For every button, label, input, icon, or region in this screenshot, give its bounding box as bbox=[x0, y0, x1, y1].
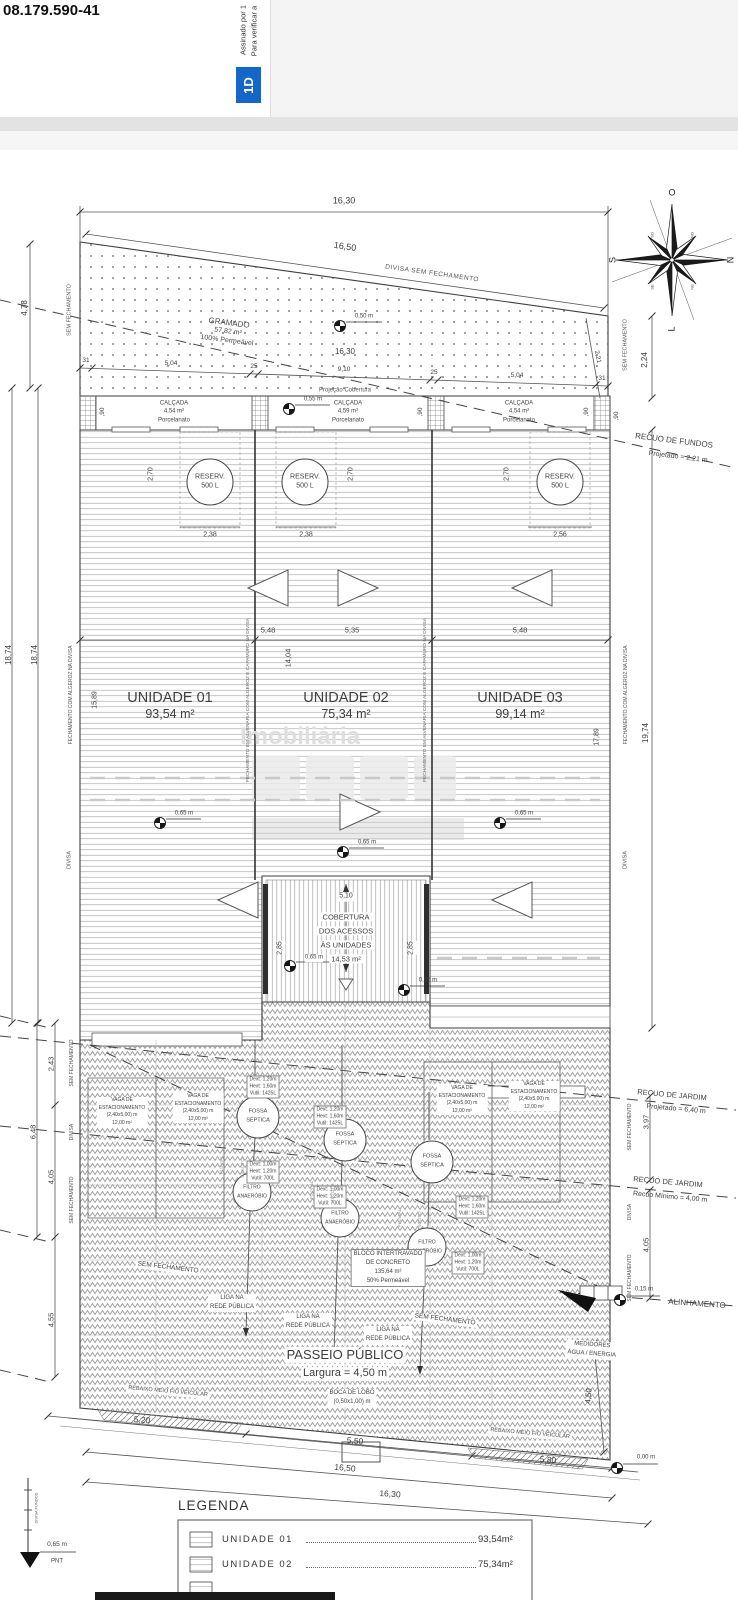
filtro-1-l2: ANAERÓBIO bbox=[237, 1192, 267, 1201]
liga-2-l1: LIGA NA bbox=[286, 1313, 330, 1322]
vaga-2-l4: 12,00 m² bbox=[175, 1116, 222, 1124]
filtro-2-l2: ANAERÓBIO bbox=[325, 1218, 355, 1227]
bottom-cut-bar bbox=[95, 1592, 335, 1600]
pipe-pluvial-2: PLUVIAL bbox=[309, 1181, 315, 1200]
calcada-1-title: CALÇADA bbox=[158, 399, 190, 407]
legend-title: LEGENDA bbox=[178, 1498, 250, 1513]
seg-dim-7: 31 bbox=[598, 375, 605, 383]
fossa-3-l1: FOSSA bbox=[420, 1153, 444, 1162]
spec-t3-c: Vutil: 700L bbox=[455, 1267, 482, 1274]
depth-dim: 14,04 bbox=[283, 649, 292, 668]
calcada-3-title: CALÇADA bbox=[503, 399, 535, 407]
divisa-right-mid: DIVISA bbox=[623, 851, 630, 869]
boca-de-lobo-label: BOCA DE LOBO(0,50x1,00) m bbox=[327, 1389, 376, 1407]
spec-f2-b: Hext: 1,60m bbox=[317, 1114, 344, 1121]
compass-sw-label: SO bbox=[650, 232, 655, 238]
compass-west-label: O bbox=[668, 187, 675, 198]
liga-rede-3: LIGA NAREDE PÚBLICA bbox=[364, 1326, 412, 1344]
cover-width-dim: 5,10 bbox=[337, 893, 355, 902]
party-wall-1-label: FECHAMENTO EM ALVENARIA COM ALGEROZ E CA… bbox=[246, 618, 252, 782]
spec-t1-a: Dext: 1,00m bbox=[250, 1162, 277, 1169]
seg-dim-4: 9,10 bbox=[338, 366, 351, 374]
spec-f3-a: Dext: 1,20m bbox=[459, 1197, 486, 1204]
fossa-1-l1: FOSSA bbox=[246, 1108, 270, 1117]
liga-rede-1: LIGA NAREDE PÚBLICA bbox=[208, 1294, 256, 1312]
compass-ne-label: NE bbox=[690, 284, 695, 290]
fossa-2-l1: FOSSA bbox=[333, 1131, 357, 1140]
calcada-3-floor: Porcelanato bbox=[503, 416, 535, 424]
legend-row-1-value: 93,54m² bbox=[478, 1534, 513, 1545]
section-dim-2: 5,35 bbox=[345, 625, 360, 634]
spec-t1-b: Hext: 1,20m bbox=[250, 1169, 277, 1176]
vaga-3-l2: ESTACIONAMENTO bbox=[439, 1093, 486, 1101]
dim-1650-bottom: 16,50 bbox=[334, 1462, 356, 1474]
filtro-3-l1: FILTRO bbox=[412, 1239, 442, 1248]
pipe-esgoto-3: ESGOTO bbox=[417, 1211, 423, 1230]
vaga-1-label: VAGA DEESTACIONAMENTO (2,40x5,00) m12,00… bbox=[97, 1097, 148, 1127]
dim-520: 5,20 bbox=[133, 1414, 150, 1426]
compass-rose bbox=[612, 200, 732, 320]
bloco-l4: 50% Permeável bbox=[354, 1277, 423, 1286]
reserv-2-cap: 500 L bbox=[290, 482, 320, 491]
spec-f1-b: Hext: 1,60m bbox=[250, 1084, 277, 1091]
filtro-2-l1: FILTRO bbox=[325, 1210, 355, 1219]
calcada-2-floor: Porcelanato bbox=[332, 416, 364, 424]
passeio-value: Largura = 4,50 m bbox=[301, 1367, 389, 1381]
reserv-3-label: RESERV. 500 L bbox=[545, 473, 575, 491]
legend-row-2-value: 75,34m² bbox=[478, 1559, 513, 1570]
reserv-1-label: RESERV. 500 L bbox=[195, 473, 225, 491]
cover-side-dim-right: 2,85 bbox=[408, 941, 417, 955]
spec-f2-c: Vutil: 1425L bbox=[317, 1121, 344, 1128]
unit-1-name: UNIDADE 01 bbox=[127, 689, 212, 707]
projecao-cobertura-label: Projeção Cobertura bbox=[319, 387, 371, 395]
spec-fossa-1: Dext: 1,20mHext: 1,60mVutil: 1425L bbox=[247, 1076, 280, 1099]
fossa-3-label: FOSSASÉPTICA bbox=[420, 1153, 444, 1172]
reserv-height-2: 2,70 bbox=[348, 467, 357, 481]
cover-line3: ÀS UNIDADES bbox=[319, 940, 374, 949]
seg-dim-2: 5,04 bbox=[165, 360, 178, 368]
spec-filtro-3: Dext: 1,00mHext: 1,20mVutil: 700L bbox=[452, 1252, 485, 1275]
vaga-2-l1: VAGA DE bbox=[175, 1093, 222, 1101]
calcada-1-floor: Porcelanato bbox=[158, 416, 190, 424]
sem-fechamento-right-b: SEM FECHAMENTO bbox=[627, 1254, 633, 1301]
calcada-2-label: CALÇADA 4,59 m² Porcelanato bbox=[332, 399, 364, 424]
benchmark-level: 0,65 m bbox=[47, 1541, 67, 1549]
spec-f3-c: Vutil: 1425L bbox=[459, 1211, 486, 1218]
dim-left-total-b: 18,74 bbox=[30, 645, 40, 665]
right-chain-397: 3,97 bbox=[641, 1115, 650, 1130]
unit-3-area: 99,14 m² bbox=[477, 707, 562, 723]
unit-1-area: 93,54 m² bbox=[127, 707, 212, 723]
fechamento-algeroz-left: FECHAMENTO COM ALGEROZ NA DIVISA bbox=[68, 646, 74, 745]
vaga-4-l3: (2,40x5,00) m bbox=[511, 1096, 558, 1104]
passeio-title: PASSEIO PÚBLICO bbox=[285, 1347, 406, 1363]
pipe-esgoto-1: ESGOTO bbox=[240, 1158, 246, 1177]
reserv-3-title: RESERV. bbox=[545, 473, 575, 482]
unit-3-label: UNIDADE 03 99,14 m² bbox=[477, 689, 562, 723]
cover-line2: DOS ACESSOS bbox=[317, 926, 375, 935]
level-mid-2: 0,65 m bbox=[515, 810, 533, 818]
left-chain-455: 4,55 bbox=[46, 1313, 55, 1328]
compass-se-label: SE bbox=[650, 284, 655, 289]
vaga-1-l1: VAGA DE bbox=[99, 1097, 146, 1105]
sem-fechamento-right-top: SEM FECHAMENTO bbox=[623, 319, 630, 371]
spec-fossa-3: Dext: 1,20mHext: 1,60mVutil: 1425L bbox=[456, 1196, 489, 1219]
divisa-fundos-label: DIVISA FUNDOS bbox=[34, 1493, 39, 1524]
vaga-1-l2: ESTACIONAMENTO bbox=[99, 1105, 146, 1113]
left-chain-648: 6,48 bbox=[28, 1125, 37, 1140]
fechamento-algeroz-right: FECHAMENTO COM ALGEROZ NA DIVISA bbox=[623, 646, 629, 745]
bloco-l2: DE CONCRETO bbox=[354, 1259, 423, 1268]
reserv-1-title: RESERV. bbox=[195, 473, 225, 482]
liga-3-l2: REDE PÚBLICA bbox=[366, 1335, 410, 1344]
vaga-4-l2: ESTACIONAMENTO bbox=[511, 1089, 558, 1097]
fossa-1-l2: SÉPTICA bbox=[246, 1117, 270, 1126]
bloco-intertravado-label: BLOCO INTERTRAVADODE CONCRETO 135,64 m²5… bbox=[351, 1249, 426, 1287]
calcada-1-label: CALÇADA 4,54 m² Porcelanato bbox=[158, 399, 190, 424]
fossa-3-l2: SÉPTICA bbox=[420, 1162, 444, 1171]
unit-2-area: 75,34 m² bbox=[303, 707, 388, 723]
spec-t3-b: Hext: 1,20m bbox=[455, 1260, 482, 1267]
liga-3-l1: LIGA NA bbox=[366, 1326, 410, 1335]
reserv-width-3: 2,56 bbox=[553, 532, 567, 541]
legend-row-1-leader bbox=[306, 1535, 476, 1543]
left-chain-243: 2,43 bbox=[46, 1057, 55, 1072]
calcada-1-area: 4,54 m² bbox=[158, 408, 190, 416]
dim-left-top: 4,78 bbox=[20, 300, 30, 316]
filtro-2-label: FILTROANAERÓBIO bbox=[325, 1210, 355, 1227]
benchmark-pnt: PNT bbox=[51, 1558, 63, 1566]
dim-lot-front-top: 16,30 bbox=[333, 195, 356, 206]
dim-grass-inner: 16,30 bbox=[335, 347, 355, 357]
sem-fechamento-right-a: SEM FECHAMENTO bbox=[627, 1103, 633, 1150]
liga-1-l1: LIGA NA bbox=[210, 1294, 254, 1303]
calcada-height-1: ,90 bbox=[99, 407, 107, 416]
vaga-1-l4: 12,00 m² bbox=[99, 1120, 146, 1128]
medidores-label: MEDIDORESÁGUA / ENERGIA bbox=[565, 1339, 619, 1361]
reserv-3-cap: 500 L bbox=[545, 482, 575, 491]
vaga-3-l1: VAGA DE bbox=[439, 1085, 486, 1093]
level-cover: 0,65 m bbox=[305, 954, 323, 962]
dim-1630-bottom: 16,30 bbox=[379, 1488, 401, 1500]
bloco-l3: 135,64 m² bbox=[354, 1268, 423, 1277]
vaga-4-l1: VAGA DE bbox=[511, 1081, 558, 1089]
calcada-2-area: 4,59 m² bbox=[332, 408, 364, 416]
unit-1-label: UNIDADE 01 93,54 m² bbox=[127, 689, 212, 723]
pipe-esgoto-2: ESGOTO bbox=[330, 1183, 336, 1202]
unit-2-label: UNIDADE 02 75,34 m² bbox=[303, 689, 388, 723]
fossa-2-l2: SÉPTICA bbox=[333, 1140, 357, 1149]
liga-2-l2: REDE PÚBLICA bbox=[286, 1322, 330, 1331]
spec-f2-a: Dext: 1,20m bbox=[317, 1107, 344, 1114]
fossa-1-label: FOSSASÉPTICA bbox=[246, 1108, 270, 1127]
pipe-pluvial-3: PLUVIAL bbox=[397, 1209, 403, 1228]
sem-fechamento-left-b: SEM FECHAMENTO bbox=[69, 1176, 75, 1223]
sem-fechamento-left-a: SEM FECHAMENTO bbox=[69, 1039, 75, 1086]
liga-1-l2: REDE PÚBLICA bbox=[210, 1303, 254, 1312]
dim-right-inner: 17,89 bbox=[594, 728, 603, 746]
cover-side-dim-left: 2,85 bbox=[277, 941, 286, 955]
calcada-height-2: ,90 bbox=[417, 407, 425, 416]
reserv-width-2: 2,38 bbox=[299, 532, 313, 541]
filtro-1-label: FILTROANAERÓBIO bbox=[237, 1184, 267, 1201]
reserv-height-1: 2,70 bbox=[148, 467, 157, 481]
spec-t3-a: Dext: 1,00m bbox=[455, 1253, 482, 1260]
left-gate bbox=[92, 1033, 242, 1046]
level-right-band: 0,55 m bbox=[419, 977, 437, 985]
legend-row-2-leader bbox=[306, 1560, 476, 1568]
reserv-2-label: RESERV. 500 L bbox=[290, 473, 320, 491]
divisa-left-mid: DIVISA bbox=[67, 851, 74, 869]
calcada-2-title: CALÇADA bbox=[332, 399, 364, 407]
divisa-right-low: DIVISA bbox=[627, 1204, 633, 1220]
seg-dim-5: 25 bbox=[430, 369, 437, 377]
level-grass: 0,50 m bbox=[355, 313, 373, 321]
bloco-l1: BLOCO INTERTRAVADO bbox=[354, 1250, 423, 1259]
divisa-left-low: DIVISA bbox=[69, 1124, 75, 1140]
spec-filtro-1: Dext: 1,00mHext: 1,20mVutil: 700L bbox=[247, 1161, 280, 1184]
pipe-pluvial-1: PLUVIAL bbox=[219, 1156, 225, 1175]
vaga-3-l4: 12,00 m² bbox=[439, 1108, 486, 1116]
dim-right-top: 2,24 bbox=[640, 352, 650, 368]
benchmark-marker bbox=[20, 1478, 76, 1568]
cover-area: 14,53 m² bbox=[329, 954, 363, 963]
level-calcada: 0,55 m bbox=[304, 396, 322, 404]
seg-dim-6: 5,04 bbox=[511, 372, 524, 380]
dim-450: 4,50 bbox=[583, 1388, 594, 1404]
filtro-1-l1: FILTRO bbox=[237, 1184, 267, 1193]
dim-left-inner: 15,89 bbox=[92, 691, 101, 709]
level-mid-1: 0,65 m bbox=[175, 810, 193, 818]
party-wall-2-label: FECHAMENTO EM ALVENARIA COM ALGEROZ E CA… bbox=[423, 618, 429, 782]
calcada-3-area: 4,54 m² bbox=[503, 408, 535, 416]
calcada-height-3: ,90 bbox=[583, 407, 591, 416]
spec-t1-c: Vutil: 700L bbox=[250, 1176, 277, 1183]
reserv-1-cap: 500 L bbox=[195, 482, 225, 491]
spec-f3-b: Hext: 1,60m bbox=[459, 1204, 486, 1211]
vaga-3-l3: (2,40x5,00) m bbox=[439, 1100, 486, 1108]
liga-rede-2: LIGA NAREDE PÚBLICA bbox=[284, 1313, 332, 1331]
spec-f1-a: Dext: 1,20m bbox=[250, 1077, 277, 1084]
spec-f1-c: Vutil: 1425L bbox=[250, 1091, 277, 1098]
watermark-text: Imobiliária bbox=[240, 722, 360, 752]
vaga-4-label: VAGA DEESTACIONAMENTO (2,40x5,00) m12,00… bbox=[509, 1081, 560, 1111]
pdf-viewer-canvas[interactable]: 08.179.590-41 Assinado por 1 Para verifi… bbox=[0, 0, 738, 1600]
compass-north-label: N bbox=[725, 257, 736, 264]
level-mid-3: 0,65 m bbox=[358, 839, 376, 847]
legend-row-2-label: UNIDADE 02 bbox=[222, 1559, 293, 1570]
calcada-height-4: ,90 bbox=[613, 411, 621, 420]
boca-l1: BOCA DE LOBO bbox=[329, 1389, 374, 1398]
reserv-width-1: 2,38 bbox=[203, 532, 217, 541]
compass-east-label: L bbox=[666, 326, 677, 331]
right-chain-405: 4,05 bbox=[641, 1238, 650, 1253]
vaga-2-label: VAGA DEESTACIONAMENTO (2,40x5,00) m12,00… bbox=[173, 1093, 224, 1123]
section-dim-3: 5,48 bbox=[513, 625, 528, 634]
reserv-2-title: RESERV. bbox=[290, 473, 320, 482]
dim-left-total-a: 18,74 bbox=[4, 645, 14, 665]
dim-550: 5,50 bbox=[346, 1435, 363, 1447]
vaga-1-l3: (2,40x5,00) m bbox=[99, 1112, 146, 1120]
dim-580: 5,80 bbox=[539, 1454, 556, 1466]
left-chain-405: 4,05 bbox=[46, 1170, 55, 1185]
level-000: 0,00 m bbox=[637, 1454, 655, 1462]
compass-nw-label: NO bbox=[690, 232, 695, 238]
boca-l2: (0,50x1,00) m bbox=[329, 1398, 374, 1407]
cover-line1: COBERTURA bbox=[321, 912, 372, 921]
seg-dim-3: 25 bbox=[250, 363, 257, 371]
unit-2-name: UNIDADE 02 bbox=[303, 689, 388, 707]
seg-dim-1: 31 bbox=[82, 357, 89, 365]
unit-3-name: UNIDADE 03 bbox=[477, 689, 562, 707]
legend-row-1-label: UNIDADE 01 bbox=[222, 1534, 293, 1545]
vaga-3-label: VAGA DEESTACIONAMENTO (2,40x5,00) m12,00… bbox=[437, 1085, 488, 1115]
vaga-2-l3: (2,40x5,00) m bbox=[175, 1108, 222, 1116]
level-alinhamento: 0,15 m bbox=[635, 1286, 653, 1294]
fossa-2-label: FOSSASÉPTICA bbox=[333, 1131, 357, 1150]
section-dim-1: 5,48 bbox=[261, 625, 276, 634]
vaga-4-l4: 12,00 m² bbox=[511, 1104, 558, 1112]
dim-right-total: 19,74 bbox=[641, 723, 651, 743]
vaga-2-l2: ESTACIONAMENTO bbox=[175, 1101, 222, 1109]
compass-south-label: S bbox=[607, 257, 618, 263]
sem-fechamento-left-top: SEM FECHAMENTO bbox=[67, 284, 74, 336]
calcada-3-label: CALÇADA 4,54 m² Porcelanato bbox=[503, 399, 535, 424]
spec-fossa-2: Dext: 1,20mHext: 1,60mVutil: 1425L bbox=[314, 1106, 347, 1129]
reserv-height-3: 2,70 bbox=[504, 467, 513, 481]
